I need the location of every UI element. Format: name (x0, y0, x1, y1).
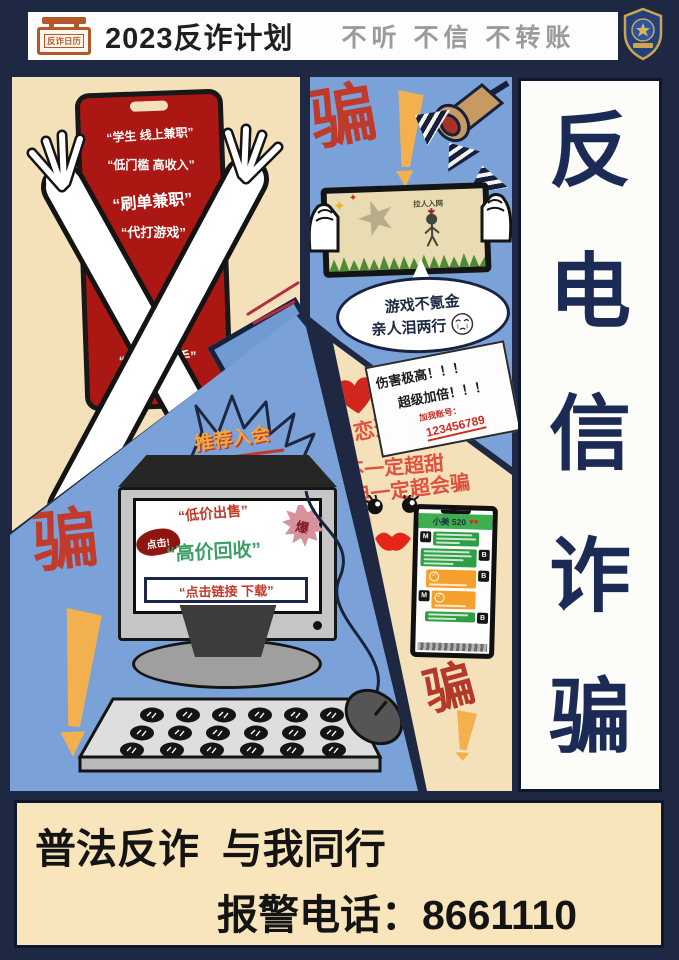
page-title: 2023反诈计划 (105, 15, 294, 57)
stick-figure (419, 208, 444, 251)
banner-char: 信 (549, 394, 631, 476)
chat-bubble (426, 569, 476, 588)
right-hand (478, 189, 514, 245)
chat-body: M B B M (415, 528, 492, 642)
chat-row: M (420, 531, 490, 547)
chat-row: B (419, 569, 489, 589)
anti-fraud-poster: 反诈日历 2023反诈计划 不听 不信 不转账 “学生 线上兼职” “低门槛 高… (0, 0, 679, 960)
chat-row: B (418, 611, 488, 624)
avatar: B (478, 571, 489, 582)
transfer-icon (434, 592, 444, 602)
chat-bubble (431, 590, 475, 609)
police-phone-number: 报警电话：8661110 (217, 881, 577, 941)
banner-char: 诈 (549, 536, 631, 618)
banner-char: 反 (549, 111, 631, 193)
keyboard (68, 695, 386, 777)
avatar: B (479, 550, 490, 561)
chat-row: B (419, 548, 489, 568)
avatar: M (420, 531, 431, 542)
grass (329, 250, 485, 271)
header-bar: 反诈日历 2023反诈计划 不听 不信 不转账 (28, 12, 618, 60)
heart-icon (334, 375, 378, 415)
banner-char: 骗 (549, 677, 631, 759)
footer-slogan: 普法反诈 与我同行 (35, 815, 386, 875)
chat-bubble (433, 531, 479, 546)
game-screen: ✦ ✦ ★ 拉人入网 (320, 182, 491, 278)
exclamation-mark (449, 710, 478, 762)
left-hand (306, 199, 342, 255)
vertical-banner: 反 电 信 诈 骗 (518, 78, 662, 792)
speech-bubble: 游戏不氪金 亲人泪两行 (335, 274, 512, 356)
romance-line: 网恋选我 (330, 405, 418, 452)
calendar-icon: 反诈日历 (37, 17, 91, 55)
banner-char: 电 (549, 252, 631, 334)
police-badge-icon (621, 7, 665, 61)
crying-face-icon (450, 311, 475, 336)
heart-icons: ♥♥ (469, 517, 479, 526)
chat-contact-name: 小美 520 (432, 515, 466, 528)
avatar: M (418, 590, 429, 601)
chat-row: M (418, 590, 488, 610)
calendar-icon-label: 反诈日历 (44, 34, 84, 48)
big-star-icon: ★ (349, 188, 403, 245)
scam-stamp: 骗 (305, 78, 381, 154)
scam-stamp: 骗 (418, 657, 479, 718)
header-slogan: 不听 不信 不转账 (342, 18, 576, 54)
chat-bubble (425, 611, 475, 622)
transfer-icon (429, 571, 439, 581)
poster-art: “学生 线上兼职” “低门槛 高收入” “刷单兼职” “代打游戏” “简单易上手… (10, 75, 512, 793)
avatar: B (477, 613, 488, 624)
chat-bubble (420, 548, 476, 567)
footer-banner: 普法反诈 与我同行 报警电话：8661110 (14, 800, 664, 948)
chat-phone: 小美 520 ♥♥ M B B (410, 504, 498, 659)
bubble-line: 亲人泪两行 (371, 314, 447, 339)
chat-input-bar (417, 642, 487, 652)
